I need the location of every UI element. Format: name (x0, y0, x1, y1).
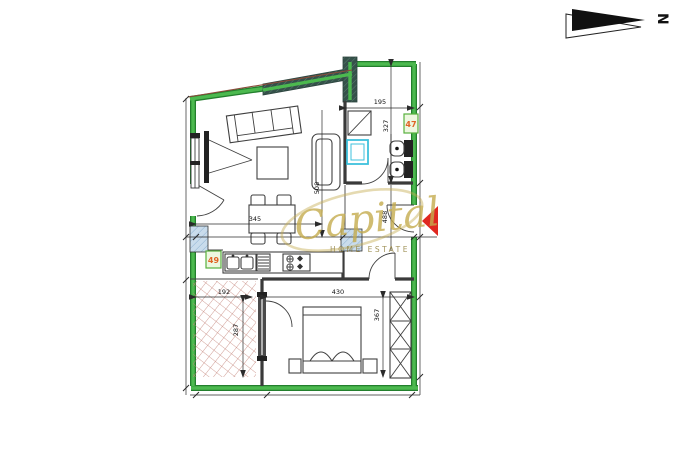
nightstand-right (363, 359, 377, 373)
dim-terrace-width: 192 (218, 288, 230, 296)
wall-pillar (190, 226, 208, 252)
floor-plan-page: 195 327 508 488 345 192 430 287 367 47 4… (0, 0, 676, 450)
dim-bedroom-width: 430 (332, 288, 344, 296)
bed (303, 307, 361, 373)
unit-badge-49: 49 (206, 251, 221, 268)
kitchen-counter (223, 252, 343, 273)
watermark-tagline: HOME ESTATE (330, 245, 410, 254)
dish-rack (257, 254, 270, 271)
bedroom-door (369, 253, 395, 279)
dim-dining-width: 345 (249, 215, 261, 223)
toilet (390, 140, 413, 157)
dim-bedroom-depth: 367 (373, 309, 381, 321)
shower (348, 111, 371, 135)
watermark-brand: Capital (292, 189, 442, 250)
north-label: N (654, 13, 670, 25)
balcony-door-living (196, 184, 224, 216)
svg-text:47: 47 (405, 120, 416, 129)
bidet (390, 161, 413, 178)
dim-bathroom-height: 327 (382, 120, 390, 132)
window-left-wall (190, 133, 200, 188)
coffee-table (257, 147, 288, 179)
stove (283, 254, 310, 271)
sofa (226, 106, 301, 143)
wardrobe (390, 292, 411, 378)
dim-bathroom-width: 195 (374, 98, 386, 106)
armchair (312, 134, 340, 190)
balcony-door-bedroom (257, 292, 292, 361)
floor-plan-svg: 195 327 508 488 345 192 430 287 367 47 4… (0, 0, 676, 450)
kitchen-sink (225, 254, 256, 271)
dim-living-depth: 508 (313, 182, 321, 194)
svg-text:49: 49 (208, 256, 220, 265)
north-arrow: N (566, 9, 670, 38)
nightstand-left (289, 359, 301, 373)
unit-badge-47: 47 (404, 114, 418, 133)
dim-terrace-depth: 287 (232, 324, 240, 336)
washing-machine (347, 140, 368, 164)
